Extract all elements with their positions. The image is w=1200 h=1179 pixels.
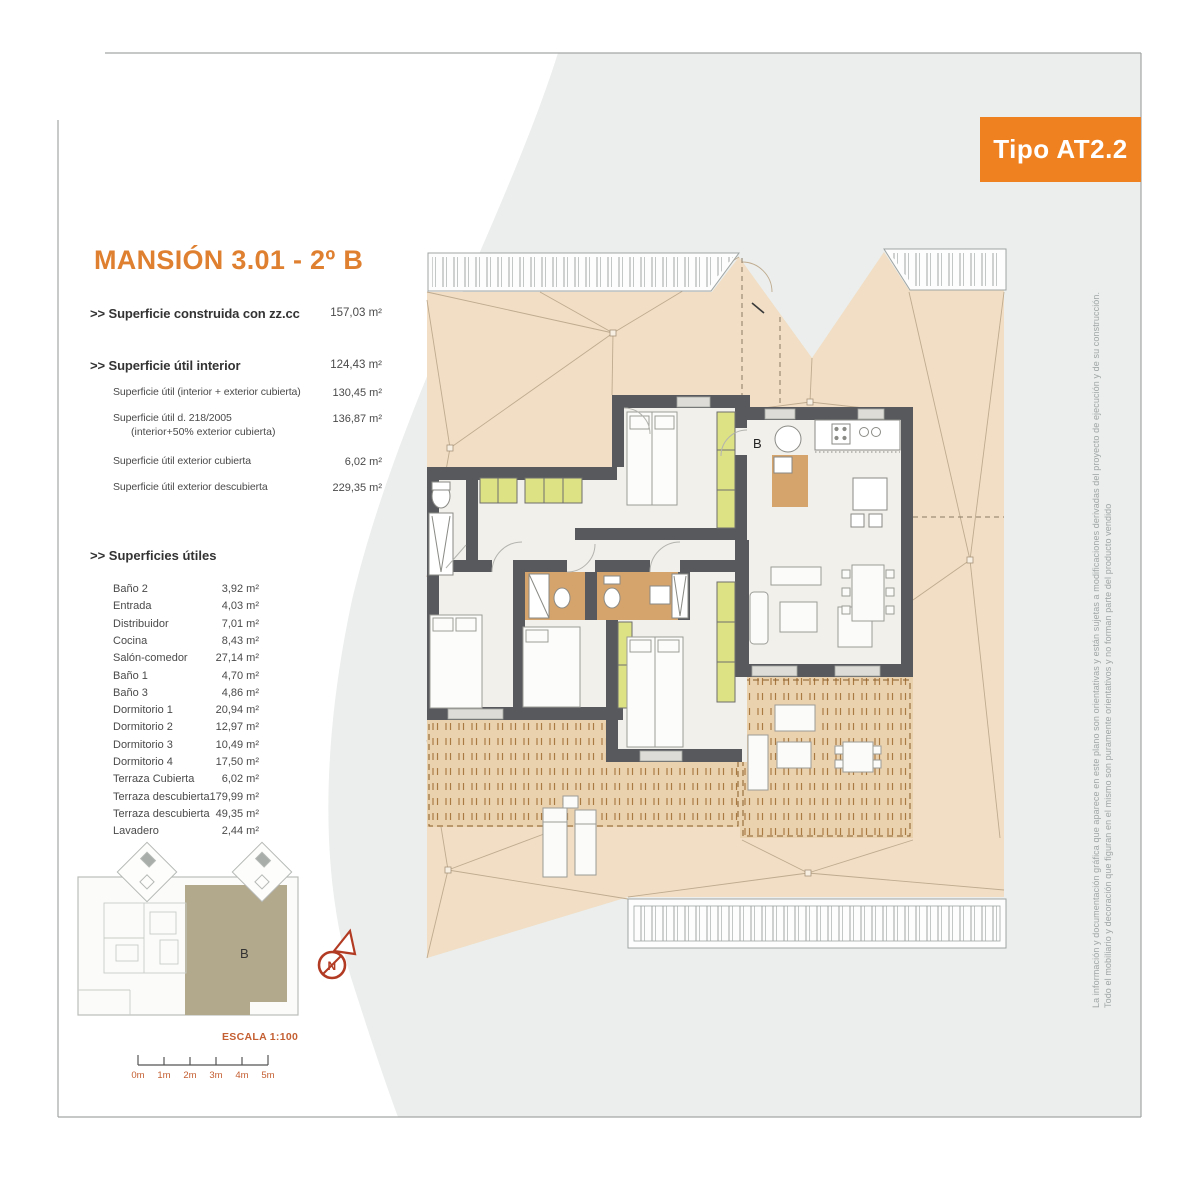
room-label: Baño 1 xyxy=(113,670,148,682)
superficies-row: Baño 14,70 m² xyxy=(113,670,259,685)
summary-label: >> Superficie útil interior xyxy=(90,358,240,373)
superficies-row: Salón-comedor27,14 m² xyxy=(113,652,259,667)
room-label: Dormitorio 1 xyxy=(113,704,173,716)
scale-caption: ESCALA 1:100 xyxy=(222,1031,298,1043)
scale-tick-label: 3m xyxy=(204,1070,228,1081)
room-label: Distribuidor xyxy=(113,618,169,630)
summary-label: >> Superficie construida con zz.cc xyxy=(90,306,300,321)
superficies-row: Terraza descubierta179,99 m² xyxy=(113,791,259,806)
room-label: Lavadero xyxy=(113,825,159,837)
room-area-value: 17,50 m² xyxy=(172,756,259,768)
disclaimer-line-1: La información y documentación gráfica q… xyxy=(1090,246,1102,1008)
scale-tick-label: 1m xyxy=(152,1070,176,1081)
keyplan-label: B xyxy=(240,946,249,961)
disclaimer-line-2: Todo el mobiliario y decoración que figu… xyxy=(1102,246,1114,1008)
summary-value: 130,45 m² xyxy=(287,387,382,399)
brochure-page: B B N xyxy=(0,0,1200,1179)
summary-value: 124,43 m² xyxy=(287,359,382,371)
summary-label: Superficie útil exterior descubierta xyxy=(113,481,268,493)
scale-tick-label: 4m xyxy=(230,1070,254,1081)
room-area-value: 6,02 m² xyxy=(172,773,259,785)
scale-tick-label: 5m xyxy=(256,1070,280,1081)
superficies-row: Distribuidor7,01 m² xyxy=(113,618,259,633)
scale-bar xyxy=(138,1055,268,1065)
legal-disclaimer: La información y documentación gráfica q… xyxy=(1090,246,1114,1008)
keyplan-unit-b xyxy=(185,885,287,1015)
type-badge: Tipo AT2.2 xyxy=(980,117,1141,182)
summary-row: Superficie útil exterior cubierta6,02 m² xyxy=(90,455,382,471)
superficies-header: >> Superficies útiles xyxy=(90,548,216,563)
superficies-row: Baño 23,92 m² xyxy=(113,583,259,598)
room-area-value: 2,44 m² xyxy=(172,825,259,837)
room-label: Baño 3 xyxy=(113,687,148,699)
summary-label: Superficie útil (interior + exterior cub… xyxy=(113,386,301,398)
entrance-label: B xyxy=(753,436,762,451)
room-label: Dormitorio 3 xyxy=(113,739,173,751)
room-area-value: 10,49 m² xyxy=(172,739,259,751)
room-label: Cocina xyxy=(113,635,147,647)
room-label: Dormitorio 4 xyxy=(113,756,173,768)
key-plan: B xyxy=(78,842,298,1015)
superficies-row: Dormitorio 417,50 m² xyxy=(113,756,259,771)
room-area-value: 8,43 m² xyxy=(172,635,259,647)
page-title: MANSIÓN 3.01 - 2º B xyxy=(94,245,363,276)
summary-label: Superficie útil d. 218/2005 xyxy=(113,412,232,424)
room-area-value: 4,86 m² xyxy=(172,687,259,699)
summary-row: Superficie útil exterior descubierta229,… xyxy=(90,481,382,497)
summary-row: >> Superficie útil interior124,43 m² xyxy=(90,358,382,374)
room-label: Dormitorio 2 xyxy=(113,721,173,733)
room-label: Entrada xyxy=(113,600,152,612)
room-area-value: 7,01 m² xyxy=(172,618,259,630)
superficies-row: Baño 34,86 m² xyxy=(113,687,259,702)
summary-row: >> Superficie construida con zz.cc157,03… xyxy=(90,306,382,322)
room-area-value: 4,03 m² xyxy=(172,600,259,612)
room-area-value: 3,92 m² xyxy=(172,583,259,595)
room-label: Baño 2 xyxy=(113,583,148,595)
room-area-value: 12,97 m² xyxy=(172,721,259,733)
superficies-row: Lavadero2,44 m² xyxy=(113,825,259,840)
scale-tick-label: 2m xyxy=(178,1070,202,1081)
room-area-value: 49,35 m² xyxy=(172,808,259,820)
scale-tick-label: 0m xyxy=(126,1070,150,1081)
superficies-row: Terraza descubierta49,35 m² xyxy=(113,808,259,823)
room-area-value: 4,70 m² xyxy=(172,670,259,682)
summary-row: Superficie útil (interior + exterior cub… xyxy=(90,386,382,402)
room-area-value: 20,94 m² xyxy=(172,704,259,716)
room-area-value: 27,14 m² xyxy=(172,652,259,664)
superficies-row: Terraza Cubierta6,02 m² xyxy=(113,773,259,788)
summary-label-line2: (interior+50% exterior cubierta) xyxy=(131,426,275,438)
superficies-row: Dormitorio 120,94 m² xyxy=(113,704,259,719)
room-area-value: 179,99 m² xyxy=(172,791,259,803)
superficies-row: Entrada4,03 m² xyxy=(113,600,259,615)
summary-value: 229,35 m² xyxy=(287,482,382,494)
main-floorplan: B xyxy=(427,249,1006,958)
superficies-row: Cocina8,43 m² xyxy=(113,635,259,650)
superficies-row: Dormitorio 212,97 m² xyxy=(113,721,259,736)
summary-value: 157,03 m² xyxy=(287,307,382,319)
summary-label: Superficie útil exterior cubierta xyxy=(113,455,251,467)
north-letter: N xyxy=(328,959,337,973)
summary-value: 136,87 m² xyxy=(287,413,382,425)
superficies-row: Dormitorio 310,49 m² xyxy=(113,739,259,754)
summary-value: 6,02 m² xyxy=(287,456,382,468)
